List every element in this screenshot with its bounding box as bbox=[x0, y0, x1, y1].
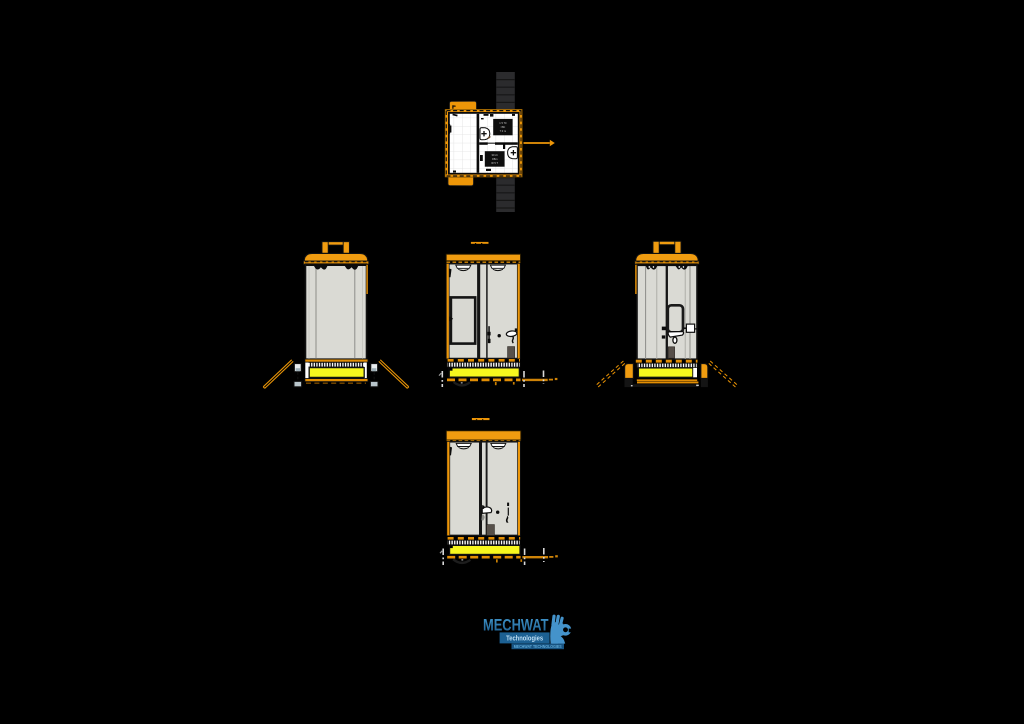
svg-text:7 0 m: 7 0 m bbox=[500, 129, 507, 133]
svg-text:MECHWAT: MECHWAT bbox=[483, 617, 549, 635]
svg-text:1 5 70: 1 5 70 bbox=[499, 121, 507, 125]
svg-text:MECHWAT TECHNOLOGIES: MECHWAT TECHNOLOGIES bbox=[514, 644, 562, 649]
svg-text:=8C: =8C bbox=[500, 125, 505, 129]
svg-text:W 5 T: W 5 T bbox=[491, 161, 498, 165]
svg-text:30 d i: 30 d i bbox=[492, 153, 499, 157]
svg-text:Technologies: Technologies bbox=[506, 636, 543, 643]
svg-text:O8m: O8m bbox=[492, 157, 498, 161]
